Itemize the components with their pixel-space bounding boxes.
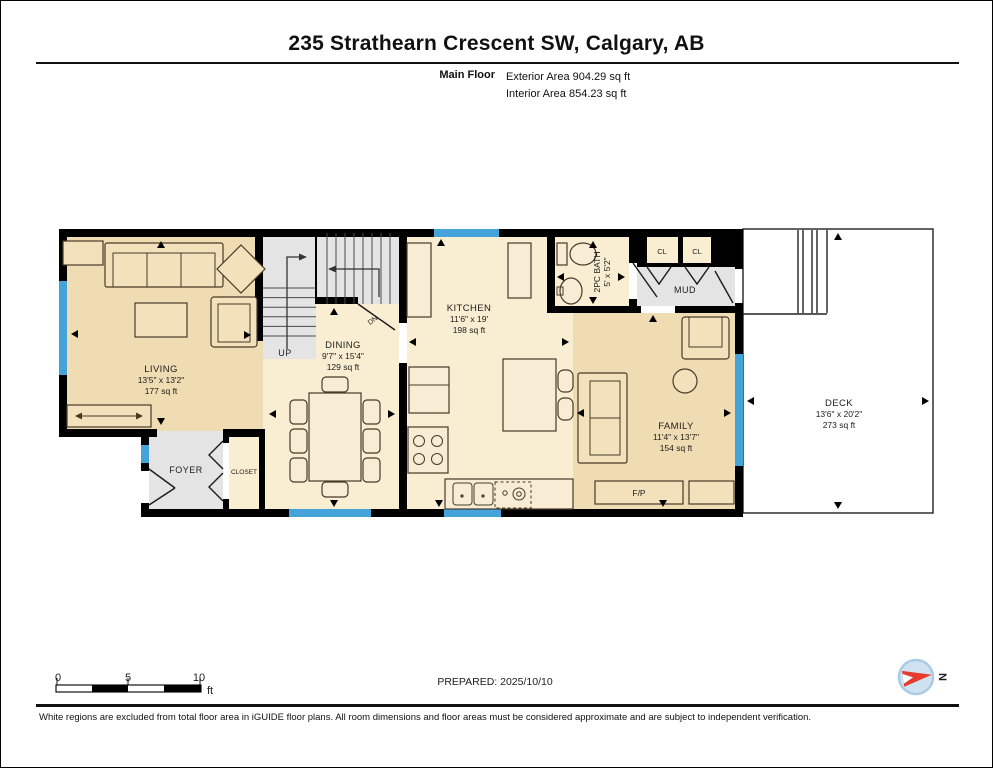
footer-divider (36, 704, 959, 707)
fridge (409, 367, 449, 413)
stool (558, 370, 573, 392)
counter (407, 243, 431, 317)
living-label: LIVING (144, 364, 178, 375)
mud-label: MUD (674, 285, 696, 295)
dining-chair (290, 429, 307, 453)
coffee-table (135, 303, 187, 337)
kitchen-dim: 11'6" x 19' (450, 314, 489, 324)
closet-label: CLOSET (231, 469, 257, 476)
kitchen-island (503, 359, 556, 431)
dining-chair (363, 400, 380, 424)
kitchen-area: 198 sq ft (453, 325, 486, 335)
living-area: 177 sq ft (145, 386, 178, 396)
scale-10: 10 (193, 672, 205, 684)
cl1-label: CL (657, 247, 667, 256)
dining-chair (363, 429, 380, 453)
foyer-window (141, 445, 149, 463)
prepared-date: PREPARED: 2025/10/10 (437, 676, 553, 688)
stove (408, 427, 448, 473)
cabinet (508, 243, 531, 298)
round-table (673, 369, 697, 393)
sofa (105, 243, 223, 287)
floor-plan-drawing: LIVING 13'5" x 13'2" 177 sq ft DINING 9'… (1, 1, 993, 768)
floor-plan-page: 235 Strathearn Crescent SW, Calgary, AB … (0, 0, 993, 768)
dining-chair (322, 482, 348, 497)
living-dim: 13'5" x 13'2" (138, 375, 185, 385)
dining-chair (322, 377, 348, 392)
kitchen-window-2 (444, 509, 501, 517)
dining-dim: 9'7" x 15'4" (322, 351, 364, 361)
up-label: UP (278, 348, 292, 358)
foyer-label: FOYER (169, 465, 203, 475)
dining-chair (290, 400, 307, 424)
hearth-cabinet (689, 481, 734, 504)
deck-area: 273 sq ft (823, 420, 856, 430)
footer-disclaimer: White regions are excluded from total fl… (39, 712, 972, 723)
compass-icon: N (899, 660, 948, 694)
fireplace-label: F/P (632, 488, 646, 498)
dining-table (309, 393, 361, 481)
dining-chair (363, 458, 380, 482)
cl2-label: CL (692, 247, 702, 256)
family-label: FAMILY (658, 421, 694, 432)
dining-area: 129 sq ft (327, 362, 360, 372)
family-area: 154 sq ft (660, 443, 693, 453)
dining-label: DINING (325, 340, 361, 351)
deck-label: DECK (825, 398, 853, 409)
family-dim: 11'4" x 13'7" (653, 432, 699, 442)
bath-dim: 5' x 5'2" (602, 257, 612, 286)
kitchen-label: KITCHEN (447, 303, 492, 314)
scale-bar: 0 5 10 ft (55, 672, 213, 697)
kitchen-window (434, 229, 499, 237)
deck-area (743, 229, 933, 513)
stool (558, 398, 573, 420)
scale-0: 0 (55, 672, 61, 684)
toilet-tank (557, 243, 567, 265)
deck-dim: 13'6" x 20'2" (816, 409, 863, 419)
north-label: N (936, 673, 948, 681)
dining-chair (290, 458, 307, 482)
dining-window (289, 509, 371, 517)
corner-table (63, 241, 103, 265)
scale-unit: ft (207, 685, 213, 697)
family-window (735, 354, 743, 466)
living-window (59, 281, 67, 375)
bath-label: 2PC BATH (592, 252, 602, 293)
stairs-up-area (263, 233, 316, 359)
